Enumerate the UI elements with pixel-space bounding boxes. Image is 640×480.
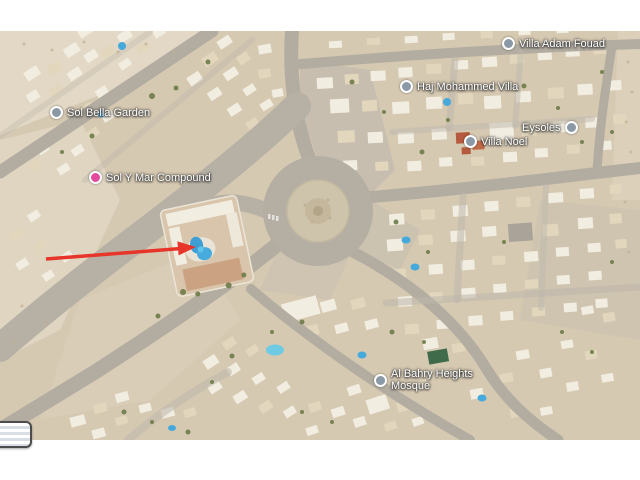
letterbox-top: [0, 0, 640, 31]
map-label-haj-mohammed-villa[interactable]: Haj Mohammed Villa: [400, 80, 518, 93]
map-label-text: Villa Adam Fouad: [519, 38, 605, 50]
poi-icon: [400, 80, 413, 93]
map-label-text: Haj Mohammed Villa: [417, 81, 518, 93]
map-label-al-bahry-heights-mosque[interactable]: Al Bahry Heights Mosque: [374, 368, 473, 392]
map-label-text: Sol Bella Garden: [67, 107, 150, 119]
map-inset-thumbnail[interactable]: [0, 421, 32, 448]
roundabout: [263, 156, 373, 266]
map-label-sol-y-mar-compound[interactable]: Sol Y Mar Compound: [89, 171, 211, 184]
poi-icon: [565, 121, 578, 134]
screenshot-page: Sol Bella Garden Sol Y Mar Compound Haj …: [0, 0, 640, 480]
satellite-imagery: [0, 0, 640, 480]
poi-icon: [464, 135, 477, 148]
map-label-villa-adam-fouad[interactable]: Villa Adam Fouad: [502, 37, 605, 50]
letterbox-bottom: [0, 440, 640, 480]
map-label-text: Eysoles: [522, 122, 561, 134]
poi-icon: [502, 37, 515, 50]
map-label-text: Al Bahry Heights Mosque: [391, 368, 473, 392]
map-label-text: Villa Noel: [481, 136, 527, 148]
poi-icon: [374, 374, 387, 387]
map-canvas[interactable]: [0, 0, 640, 480]
lodging-icon: [89, 171, 102, 184]
poi-icon: [50, 106, 63, 119]
map-label-text: Sol Y Mar Compound: [106, 172, 211, 184]
map-label-villa-noel[interactable]: Villa Noel: [464, 135, 527, 148]
map-label-sol-bella-garden[interactable]: Sol Bella Garden: [50, 106, 150, 119]
map-label-eysoles[interactable]: Eysoles: [522, 121, 578, 134]
